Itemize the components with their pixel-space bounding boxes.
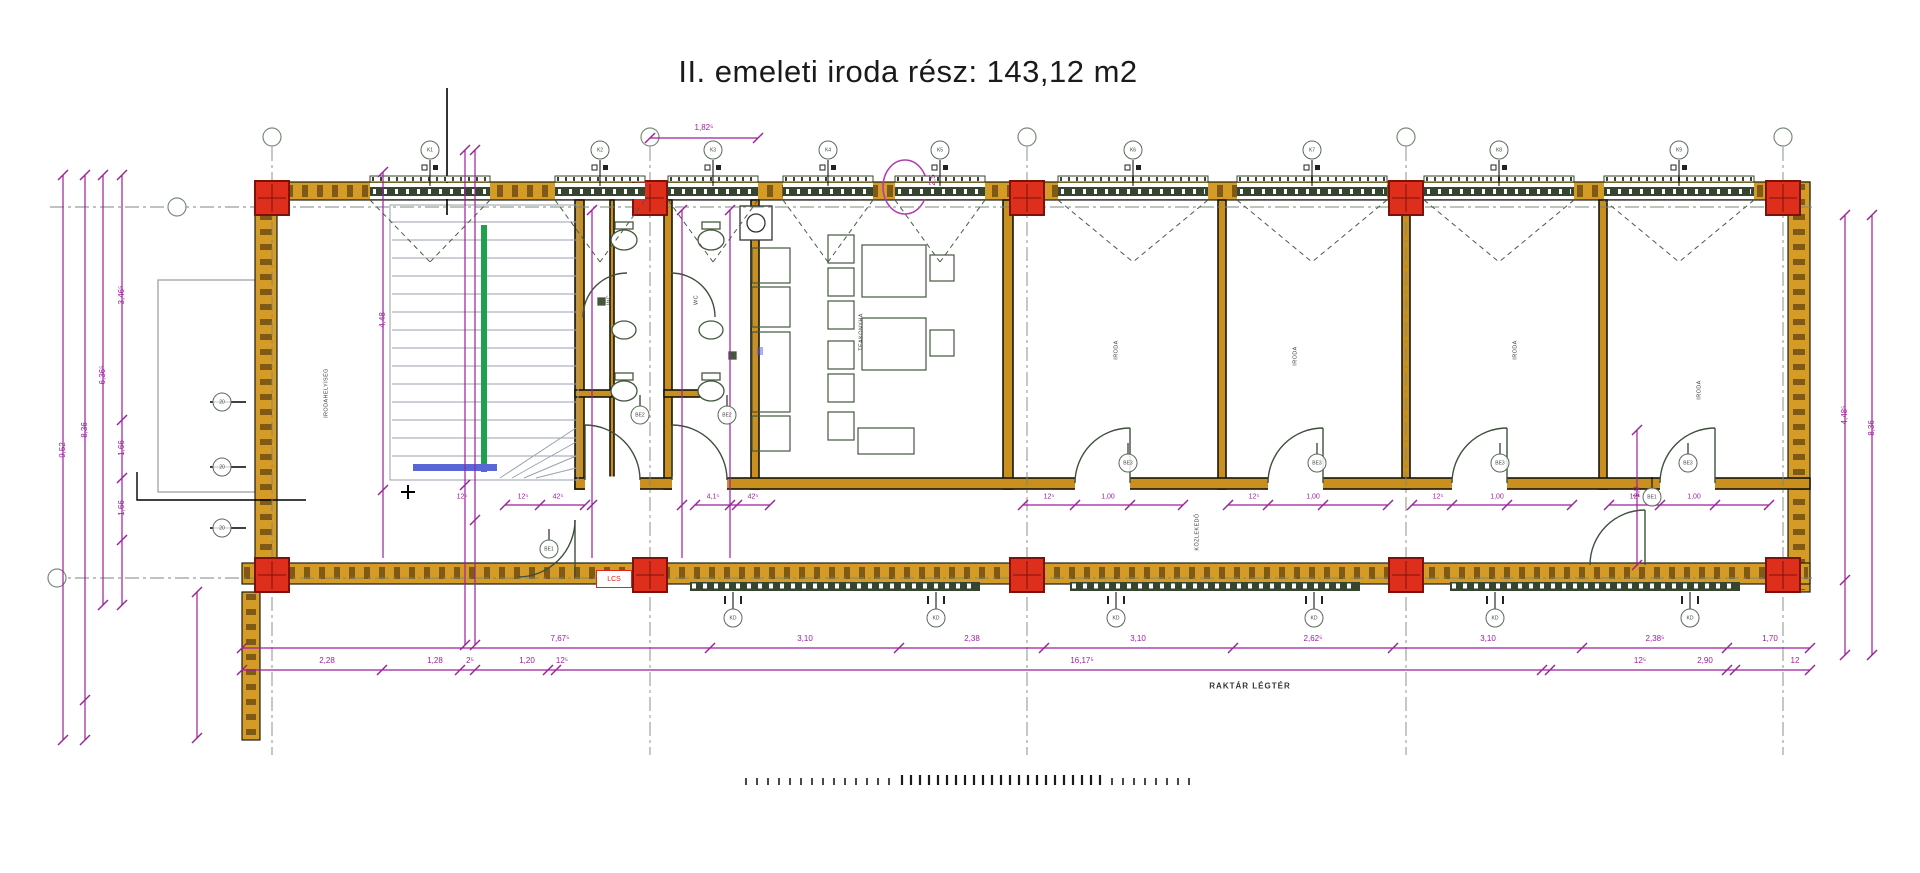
window-bar [1604,187,1754,196]
page-title: II. emeleti iroda rész: 143,12 m2 [678,54,1137,90]
door-tag: BE3 [1491,454,1510,473]
window-opening-line [1604,200,1679,262]
window-tag: K7 [1303,141,1322,160]
bottom-window-tag: KD [724,609,743,628]
window-mark [932,165,937,170]
window-tag: K3 [704,141,723,160]
room-label: TEAKONYHA [859,313,866,351]
black-annotations [137,88,447,528]
window-opening-line [1679,200,1754,262]
kitchen-furniture [752,235,954,454]
room-label: IRODAHELYISÉG [324,368,331,418]
room-label: KÖZLEKEDŐ [1195,513,1202,550]
window-opening-line [1133,200,1208,262]
stair-landing-blue [413,464,497,471]
door-tag: BE2 [631,406,650,425]
window-tag: K9 [1670,141,1689,160]
grid-bubble [168,198,186,216]
window-tag: K6 [1124,141,1143,160]
window-opening-line [370,200,430,262]
room-label: IRODA [1114,340,1121,359]
floor-plan-drawing [0,0,1920,873]
bottom-window-tag: KD [1681,609,1700,628]
window-mark [716,165,721,170]
room-label: IRODA [1513,340,1520,359]
window-opening-line [1499,200,1574,262]
door-tag: BE2 [718,406,737,425]
terrace-outline [158,280,255,492]
window-opening-line [828,200,873,262]
window-mark [831,165,836,170]
floor-plan-canvas: II. emeleti iroda rész: 143,12 m2 LCS RA… [0,0,1920,873]
window-mark [603,165,608,170]
left-wall-tag: 20 [213,458,232,477]
fire-cabinet-label: LCS [596,570,632,588]
left-wall-tag: 20 [213,393,232,412]
grid-bubble [1774,128,1792,146]
window-tag: K4 [819,141,838,160]
window-mark [592,165,597,170]
door-tag: BE1 [1643,488,1662,507]
window-mark [1671,165,1676,170]
window-bar [783,187,873,196]
door-tag: BE3 [1119,454,1138,473]
window-bar [1237,187,1387,196]
window-mark [1682,165,1687,170]
window-bar [1058,187,1208,196]
bottom-window-tag: KD [927,609,946,628]
window-mark [1125,165,1130,170]
exterior-walls [242,182,1810,740]
kitchen-symbol: ≣ [756,347,764,358]
door-tag: BE3 [1308,454,1327,473]
window-bar [555,187,645,196]
bottom-window-tag: KD [1486,609,1505,628]
stair-rail-green [481,225,487,472]
window-tag: K5 [931,141,950,160]
window-mark [1304,165,1309,170]
window-opening-line [1424,200,1499,262]
bottom-window-tag: KD [1305,609,1324,628]
door-tag: BE1 [540,540,559,559]
window-mark [1491,165,1496,170]
window-mark [422,165,427,170]
window-mark [1502,165,1507,170]
window-opening-line [940,200,985,262]
bottom-window-tag: KD [1107,609,1126,628]
window-bar [668,187,758,196]
storage-airspace-label: RAKTÁR LÉGTÉR [1209,682,1290,691]
window-mark [820,165,825,170]
door-swings [518,273,1715,577]
room-label: WC [694,295,701,305]
left-wall-tag: 20 [213,519,232,538]
window-bar [1424,187,1574,196]
door-tag: BE3 [1679,454,1698,473]
window-mark [705,165,710,170]
window-mark [1315,165,1320,170]
room-label: IRODA [1293,346,1300,365]
window-opening-line [600,200,645,262]
window-opening-line [1058,200,1133,262]
window-mark [1136,165,1141,170]
window-tag: K8 [1490,141,1509,160]
interior-partitions [575,200,1810,489]
window-mark [433,165,438,170]
window-tag: K1 [421,141,440,160]
window-tag: K2 [591,141,610,160]
window-opening-line [1237,200,1312,262]
grid-bubble [1397,128,1415,146]
window-bar [895,187,985,196]
window-mark [943,165,948,170]
grid-bubble [641,128,659,146]
room-label: IRODA [1697,380,1704,399]
grid-bubble [263,128,281,146]
sanitary-fixtures [598,206,772,401]
window-opening-line [1312,200,1387,262]
grid-bubble [1018,128,1036,146]
bottom-wall-windows [690,582,1740,591]
room-label: WC [607,295,614,305]
